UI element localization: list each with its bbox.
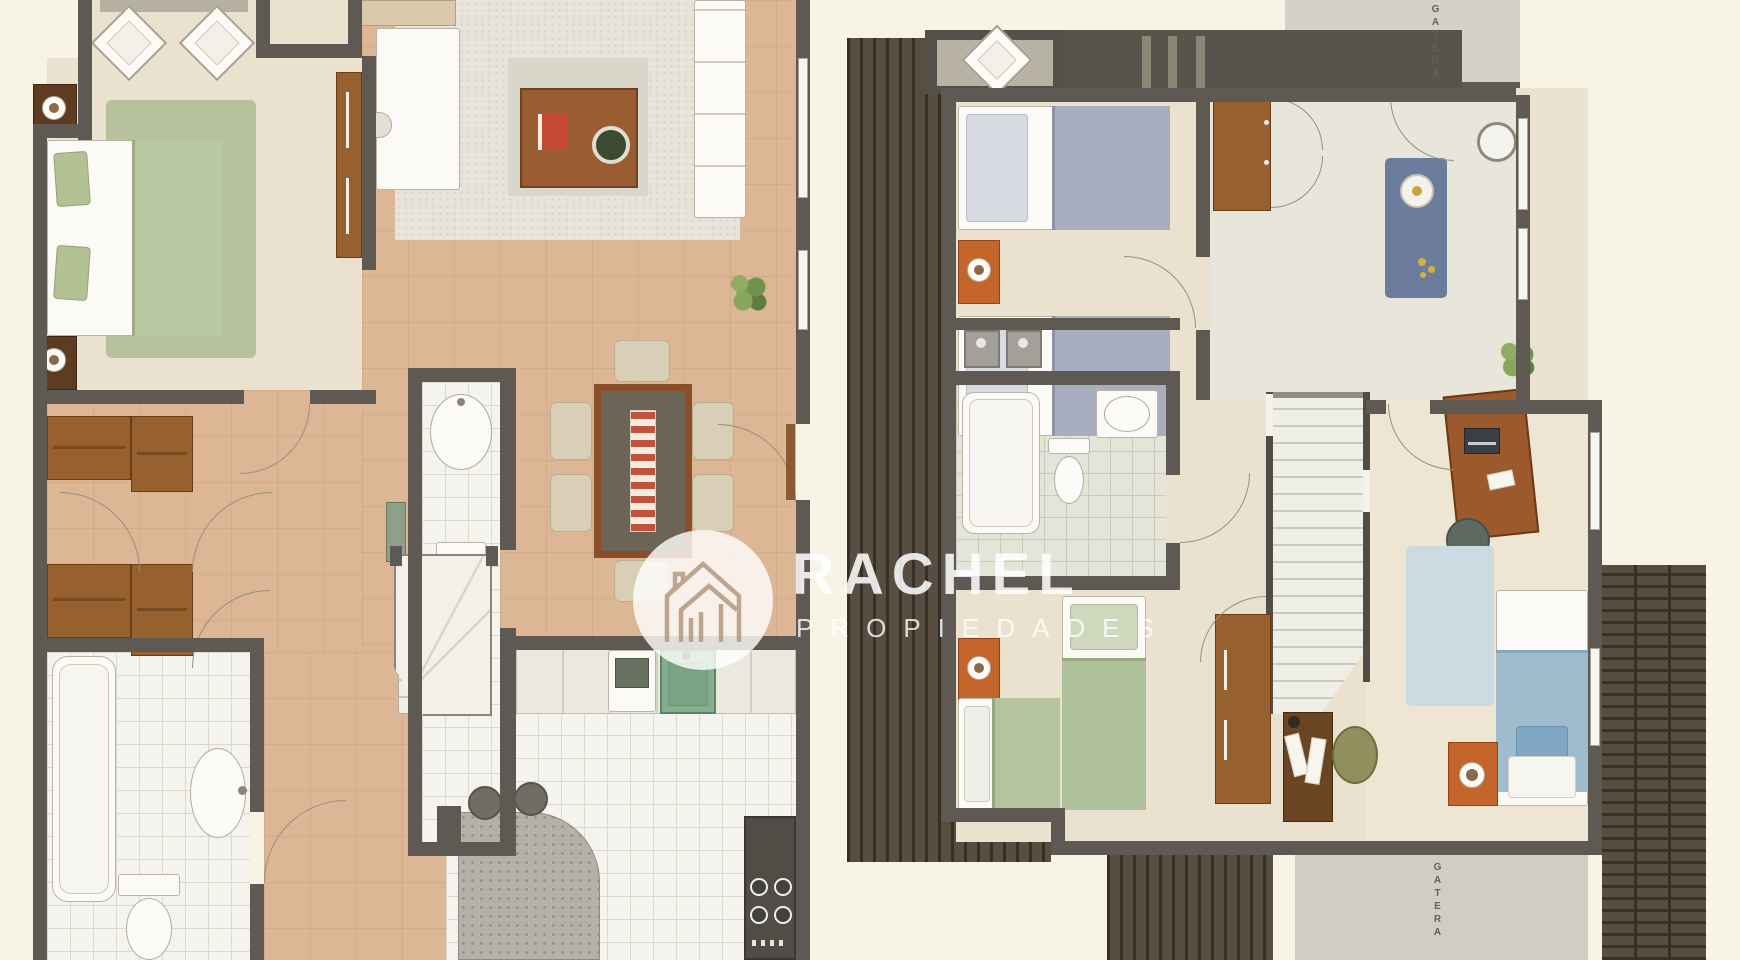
roof-band (1060, 30, 1462, 94)
faucet (238, 786, 247, 795)
table-lamp (967, 258, 991, 282)
wall-segment (310, 390, 376, 404)
closet-shelf (53, 598, 125, 601)
faucet (457, 398, 465, 406)
wall-segment (250, 652, 264, 812)
burner-icon (750, 906, 768, 924)
wall-segment (500, 628, 516, 856)
book (538, 114, 568, 150)
dining-chair (614, 340, 670, 382)
faucet (682, 652, 690, 660)
wardrobe-handle (1224, 720, 1227, 760)
wardrobe-handle (1264, 160, 1269, 165)
wall-segment (33, 124, 47, 960)
wall-segment (1366, 400, 1386, 414)
gatera-label-bottom: GATERA (1432, 862, 1443, 956)
toilet-tank (118, 874, 180, 896)
wall-segment (1166, 385, 1180, 475)
wall-segment (1430, 400, 1602, 414)
washer-dial (976, 338, 986, 348)
burner-icon (774, 878, 792, 896)
dining-chair (550, 402, 592, 460)
sofa-right (694, 0, 746, 218)
staircase (1272, 392, 1366, 714)
stove-controls (752, 940, 788, 946)
bathtub-basin (59, 664, 109, 894)
wall-segment (1201, 841, 1301, 855)
wall-segment (78, 0, 92, 140)
bathroom-sink (190, 748, 246, 838)
decor-dot (1428, 266, 1435, 273)
table-lamp (967, 656, 991, 680)
wall-segment (941, 88, 1516, 102)
deck-seam (1668, 565, 1671, 960)
washer (1006, 330, 1042, 368)
window (1590, 432, 1600, 530)
railing-post (1363, 470, 1370, 512)
wall-segment (1295, 841, 1588, 855)
bed-blanket (992, 698, 1060, 810)
closet-shelf (137, 452, 187, 455)
railing-post (1266, 394, 1273, 436)
closet (47, 564, 131, 638)
decor-star (1412, 186, 1422, 196)
desk-lamp (1288, 716, 1300, 728)
laptop (1464, 428, 1500, 454)
decor-dot (1418, 258, 1426, 266)
wall-segment (437, 806, 461, 856)
wardrobe-handle (346, 178, 349, 234)
pillow (1508, 756, 1576, 798)
pillow (53, 151, 91, 207)
sofa-left (376, 28, 460, 190)
wall-segment (348, 0, 362, 56)
laptop-keyboard (1468, 442, 1496, 445)
deck-seam (1634, 565, 1637, 960)
deck-left (847, 38, 941, 862)
pillow (53, 245, 91, 301)
wall-segment (390, 546, 402, 566)
wardrobe (336, 72, 362, 258)
gatera-label-top: GATERA (1430, 4, 1441, 76)
wall-segment (250, 884, 264, 960)
wall-segment (408, 368, 422, 856)
wall-segment (1051, 841, 1203, 855)
table-plant (592, 126, 630, 164)
kitchen-island (458, 812, 600, 960)
wall-segment (941, 371, 1180, 385)
table-lamp (42, 96, 66, 120)
oven-door (615, 658, 649, 688)
bathroom-sink (1104, 396, 1150, 432)
window-mullion (1168, 36, 1177, 88)
pillow (1070, 604, 1138, 650)
wardrobe-handle (346, 92, 349, 148)
pillow (966, 114, 1028, 222)
kitchen-counter (516, 648, 796, 714)
entry-door-leaf (786, 424, 795, 500)
sink-basin (668, 662, 708, 706)
washer-dial (1018, 338, 1028, 348)
console-table (358, 0, 456, 26)
window-mullion (1142, 36, 1151, 88)
wall-segment (486, 546, 498, 566)
window (1590, 648, 1600, 746)
wall-segment (33, 124, 92, 138)
window (1518, 118, 1528, 210)
bathtub-basin (969, 399, 1033, 527)
table-runner (630, 410, 656, 532)
wall-segment (1196, 95, 1210, 257)
closet-shelf (137, 608, 187, 611)
window (798, 58, 808, 198)
desk-chair (1332, 726, 1378, 784)
bedroom-rug (1406, 546, 1494, 706)
washer (964, 330, 1000, 368)
wall-mirror (1477, 122, 1517, 162)
deck-right (1602, 565, 1706, 960)
bed-blanket (1052, 106, 1170, 230)
burner-icon (750, 878, 768, 896)
wall-segment (33, 638, 264, 652)
wardrobe (1213, 95, 1271, 211)
stool (514, 782, 548, 816)
pillow (964, 706, 990, 802)
wall-segment (256, 44, 362, 58)
toilet-bowl (1054, 456, 1084, 504)
window (1518, 228, 1528, 300)
decor-dot (1420, 272, 1426, 278)
floor-plan-image: GATERA GATERA RACHEL PROPIEDADES (0, 0, 1740, 960)
wall-segment (941, 576, 1180, 590)
toilet-tank (1048, 438, 1090, 454)
wall-segment (33, 390, 244, 404)
stair-railing (1363, 392, 1370, 682)
floor-plant (722, 266, 772, 316)
wall-segment (941, 808, 1053, 822)
dining-chair (550, 474, 592, 532)
wall-segment (1196, 330, 1210, 400)
table-lamp (1459, 762, 1485, 788)
stair-landing-edge (1272, 392, 1366, 398)
window (798, 250, 808, 330)
burner-icon (774, 906, 792, 924)
dining-chair (614, 560, 670, 602)
wall-segment (362, 56, 376, 270)
wardrobe-handle (1264, 120, 1269, 125)
toilet-bowl (126, 898, 172, 960)
wall-segment (516, 636, 810, 650)
wall-segment (941, 88, 956, 822)
wall-segment (796, 500, 810, 960)
wall-segment (408, 368, 516, 382)
deck-walkway (1107, 848, 1273, 960)
wall-segment (408, 842, 516, 856)
stool (468, 786, 502, 820)
window-mullion (1196, 36, 1205, 88)
wall-segment (500, 368, 516, 550)
bed-blanket (132, 140, 223, 336)
bed-blanket (1062, 658, 1146, 810)
closet-shelf (53, 446, 125, 449)
